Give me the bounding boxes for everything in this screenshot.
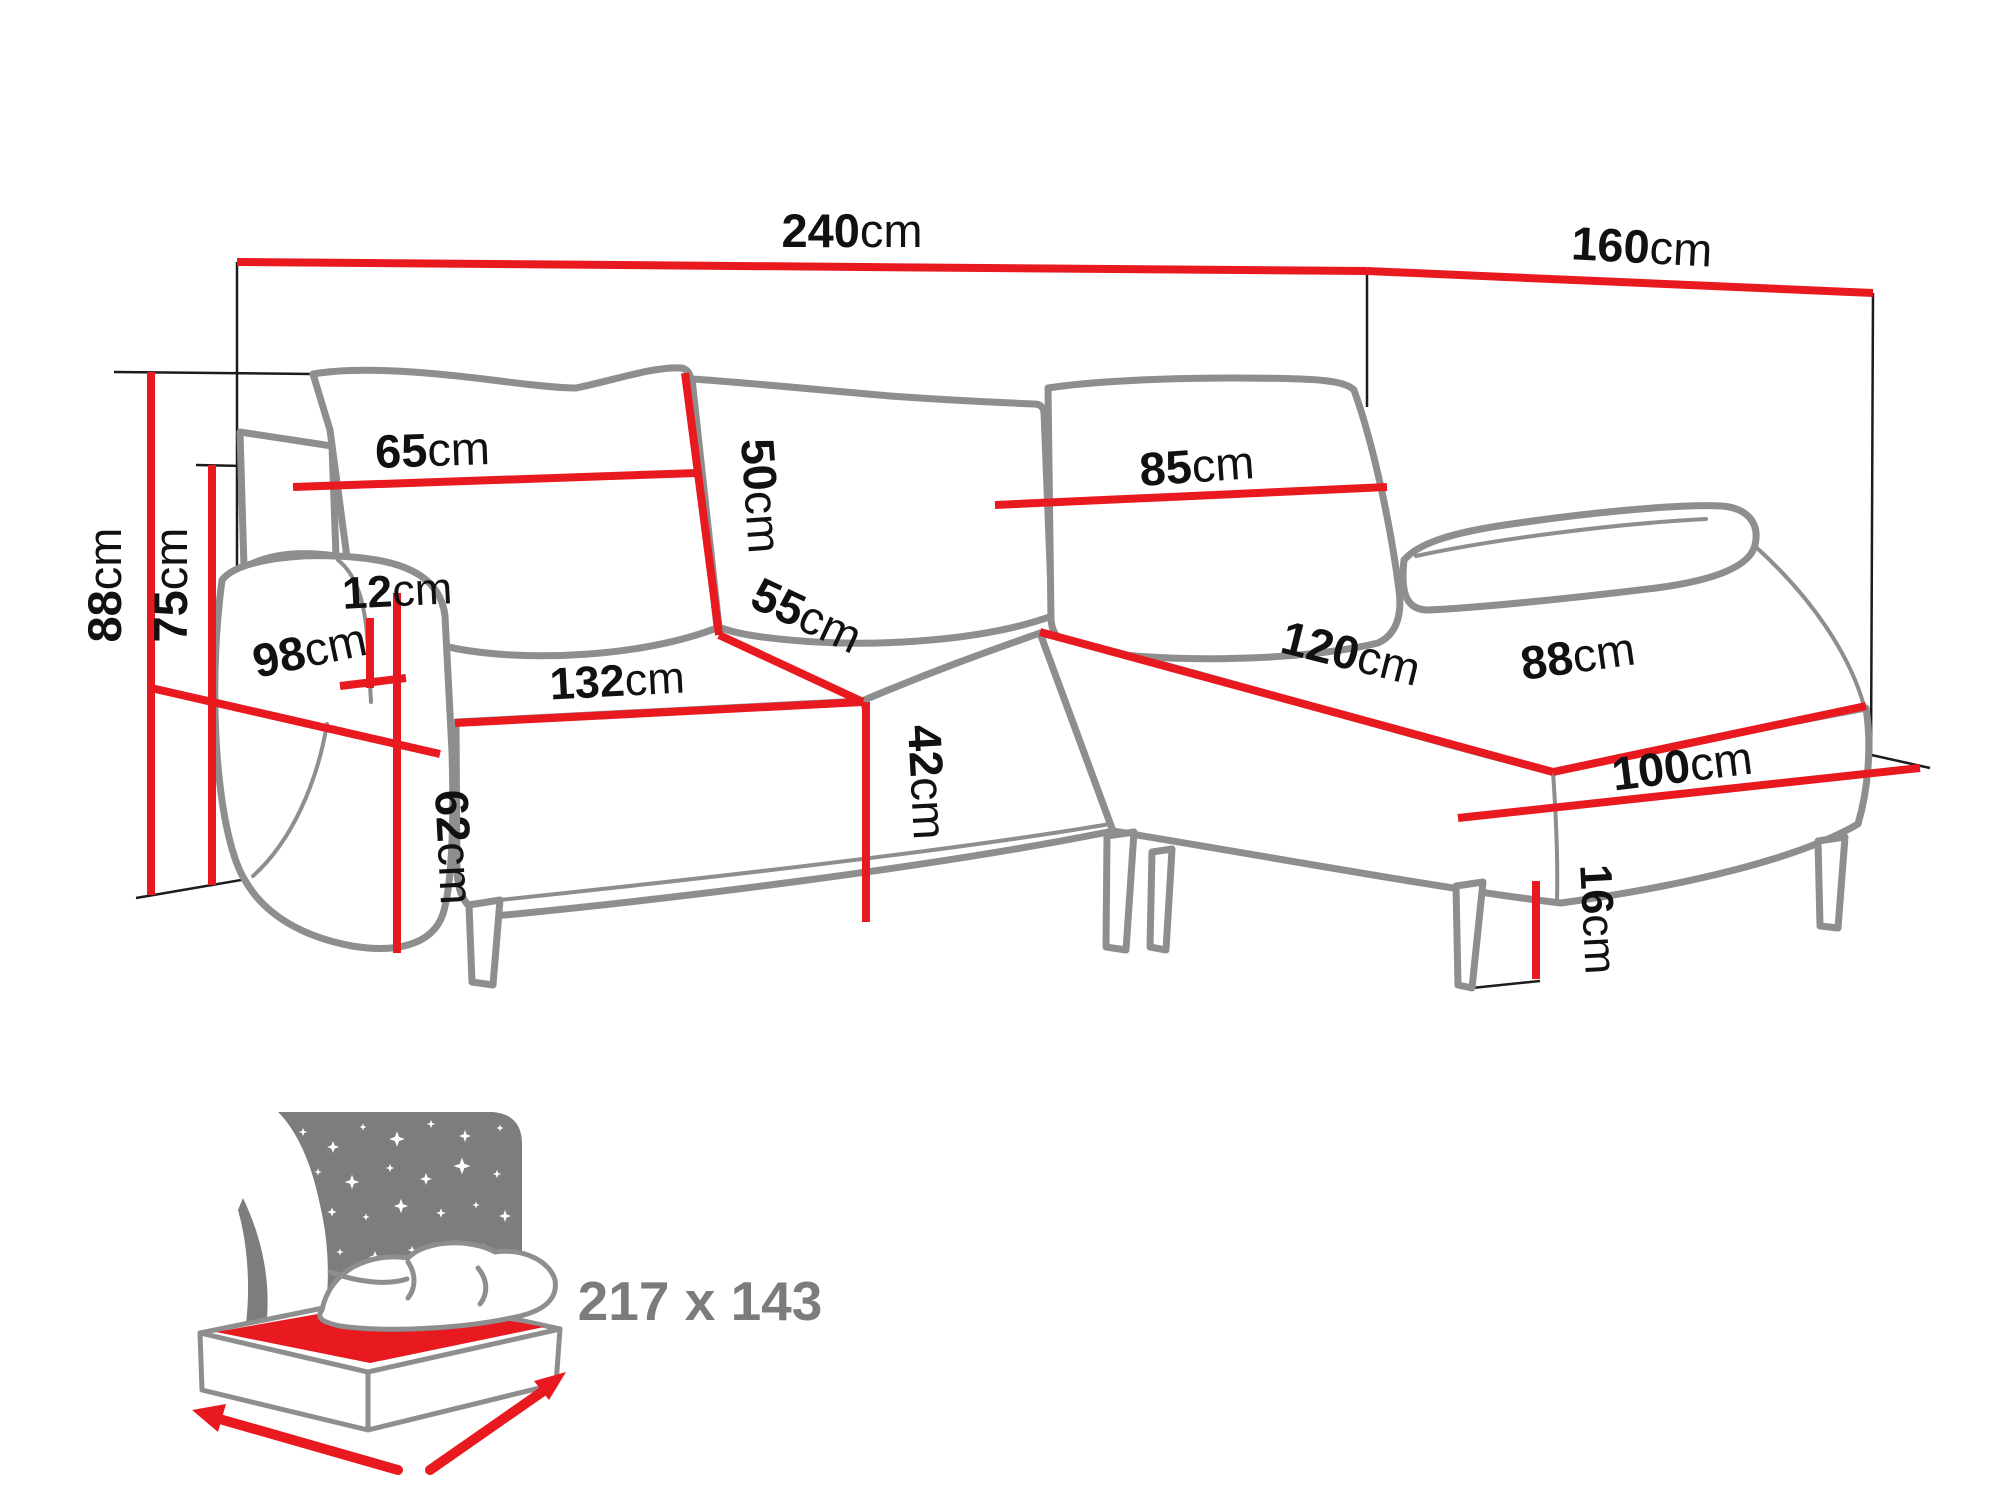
- bed-arrow-left-head: [192, 1404, 226, 1432]
- dim-label-back-cushion-left: 65cm: [374, 421, 491, 478]
- dim-label-leg-height: 16cm: [1570, 863, 1627, 976]
- dim-label-total-height: 88cm: [78, 528, 131, 643]
- dim-line-total-depth: [1367, 271, 1873, 293]
- sofa-leg-front-left: [469, 900, 500, 985]
- dim-label-armrest-width: 12cm: [341, 562, 454, 619]
- projection-line-right: [1871, 293, 1873, 758]
- dim-line-total-width: [237, 262, 1367, 271]
- sofa-leg-front-right-rear: [1150, 849, 1172, 950]
- chaise-leg-left: [1456, 882, 1483, 988]
- sofa-leg-front-right: [1106, 832, 1134, 950]
- dim-label-total-depth: 160cm: [1570, 216, 1714, 276]
- dim-label-back-cushion-right: 85cm: [1138, 435, 1256, 496]
- dim-label-chaise-width: 88cm: [1517, 621, 1638, 689]
- sleeping-area-icon: 217 x 143: [192, 1112, 822, 1470]
- sofa-dimension-diagram: 240cm 160cm 88cm 75cm 65cm 50cm 55cm 132…: [0, 0, 2000, 1499]
- sofa-back-frame: [240, 432, 336, 568]
- right-armrest: [1403, 506, 1756, 610]
- backrest-top-tick: [196, 465, 244, 466]
- back-cushion-chaise: [1048, 378, 1400, 659]
- dim-label-total-width: 240cm: [781, 204, 922, 257]
- diagram-canvas: 240cm 160cm 88cm 75cm 65cm 50cm 55cm 132…: [0, 0, 2000, 1499]
- dim-label-armrest-height: 62cm: [425, 788, 484, 906]
- dim-label-backrest-height: 75cm: [144, 528, 197, 643]
- leg-bottom-tick: [1472, 981, 1540, 988]
- chaise-wall-edge: [1757, 548, 1864, 706]
- chaise-leg-right: [1818, 837, 1845, 928]
- dim-label-back-cushion-depth: 50cm: [731, 437, 792, 555]
- dim-label-seat-height: 42cm: [898, 723, 957, 841]
- sleeping-area-size-label: 217 x 143: [578, 1270, 823, 1332]
- height-top-tick: [114, 372, 313, 374]
- dim-label-seat-width: 132cm: [548, 652, 686, 710]
